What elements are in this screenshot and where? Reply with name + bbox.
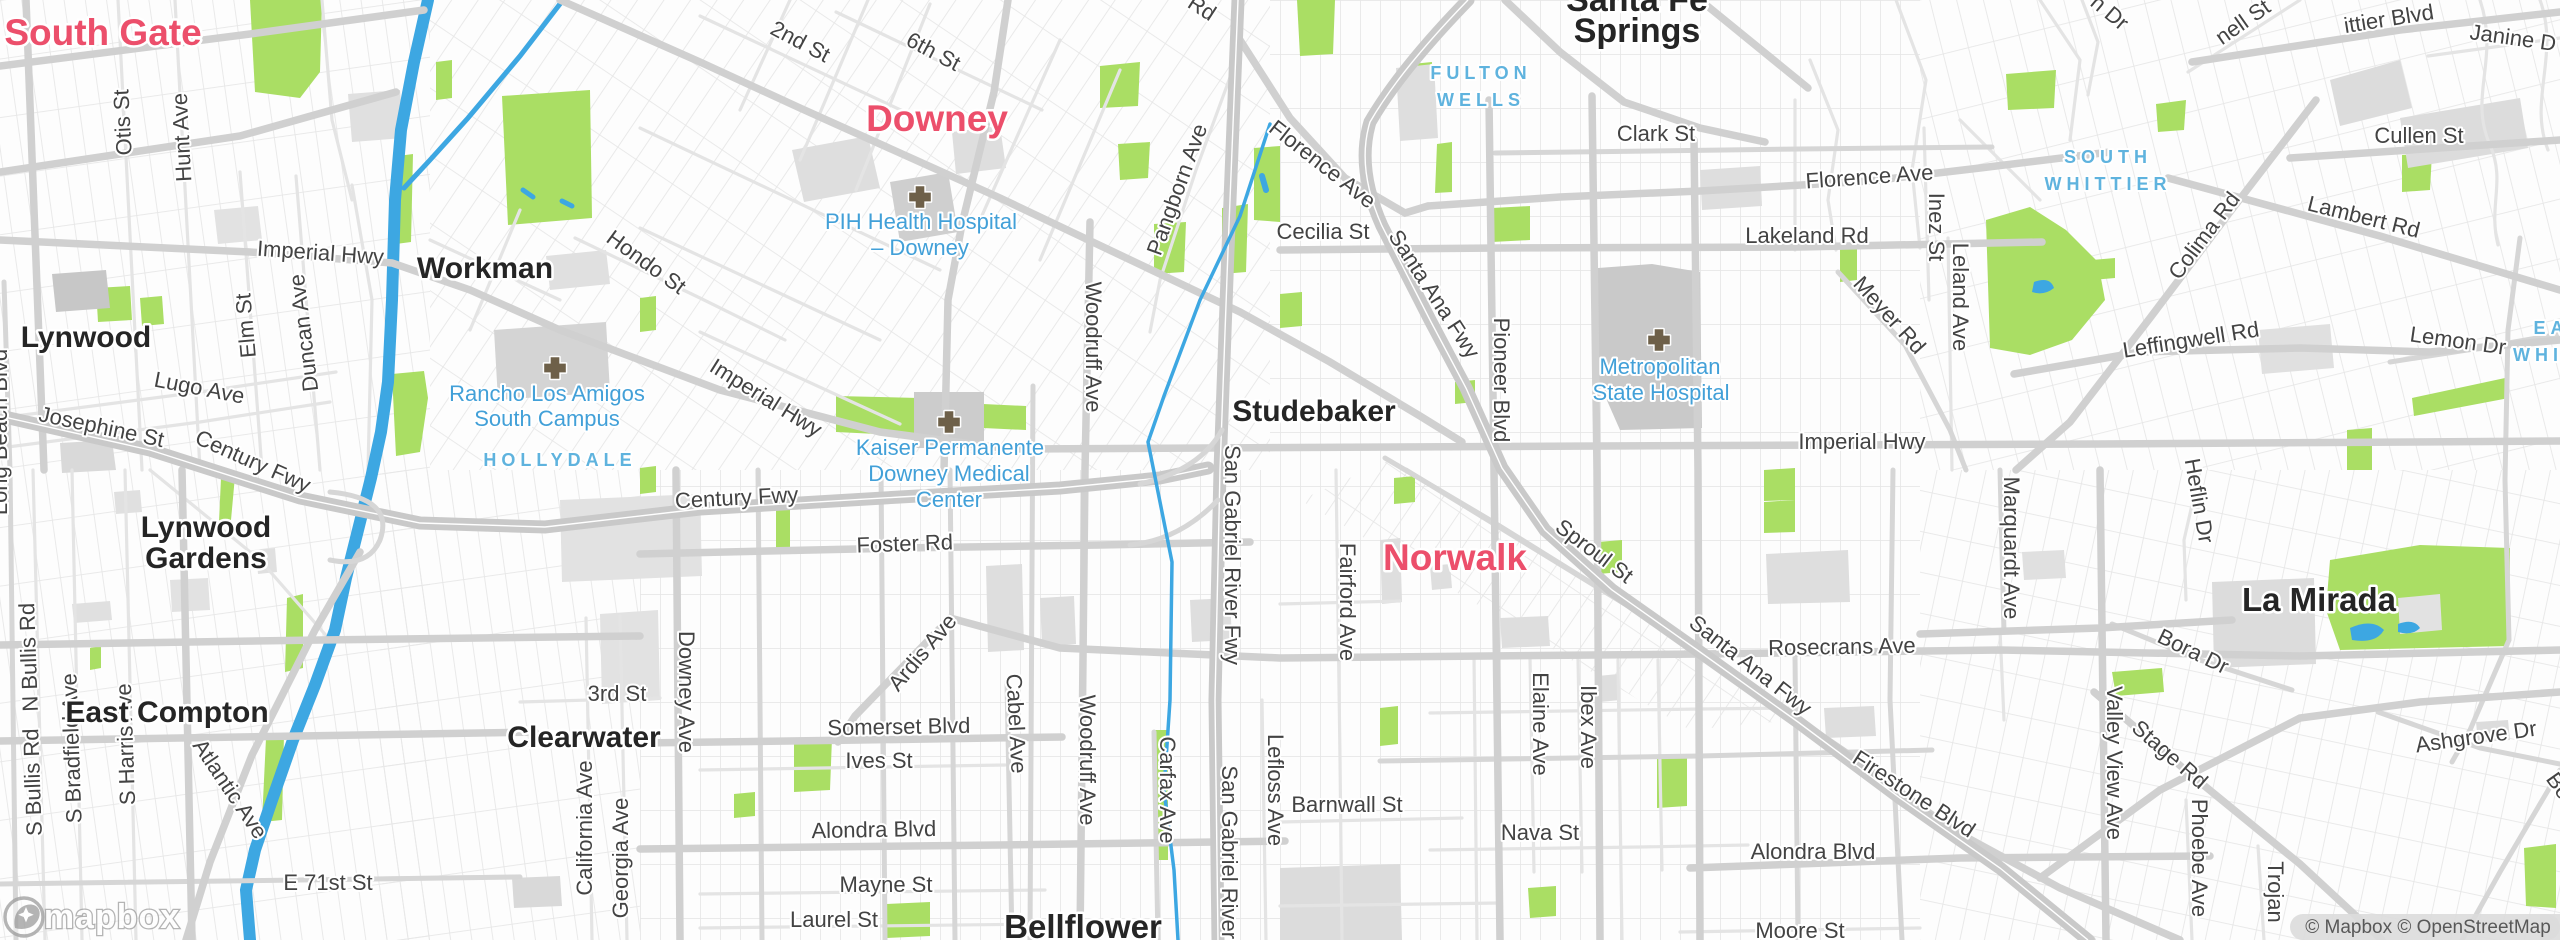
svg-text:Leland Ave: Leland Ave [1948,243,1973,351]
svg-text:Cabel Ave: Cabel Ave [1001,673,1031,774]
svg-text:© Mapbox © OpenStreetMap: © Mapbox © OpenStreetMap [2305,917,2551,938]
svg-text:Lynwood: Lynwood [141,511,272,544]
svg-text:Springs: Springs [1574,12,1701,50]
svg-text:Valley View Ave: Valley View Ave [2102,686,2127,840]
svg-text:Center: Center [916,487,982,512]
svg-text:Ives St: Ives St [845,748,912,773]
svg-text:3rd St: 3rd St [588,681,647,706]
svg-text:E 71st St: E 71st St [283,870,372,895]
svg-text:Downey Ave: Downey Ave [674,631,699,753]
svg-text:WELLS: WELLS [1437,90,1525,110]
svg-text:Rancho Los Amigos: Rancho Los Amigos [449,381,645,406]
svg-text:South Campus: South Campus [474,406,620,431]
svg-text:S Bullis Rd: S Bullis Rd [18,728,47,836]
svg-text:California Ave: California Ave [572,760,597,895]
svg-text:Cecilia St: Cecilia St [1277,219,1370,244]
svg-text:PIH Health Hospital: PIH Health Hospital [825,209,1017,234]
svg-text:Lefloss Ave: Lefloss Ave [1263,734,1288,846]
svg-text:Workman: Workman [417,252,553,285]
svg-text:Fairford Ave: Fairford Ave [1335,543,1360,661]
svg-text:Pioneer Blvd: Pioneer Blvd [1489,318,1514,443]
svg-text:Laurel St: Laurel St [790,907,878,932]
svg-text:Gardens: Gardens [145,542,267,575]
svg-text:WHITTIER: WHITTIER [2045,174,2172,194]
svg-text:Metropolitan: Metropolitan [1599,354,1720,379]
svg-text:Imperial Hwy: Imperial Hwy [1798,429,1925,454]
svg-text:Hunt Ave: Hunt Ave [167,92,197,182]
svg-text:FULTON: FULTON [1430,63,1531,83]
svg-text:Carfax Ave: Carfax Ave [1155,736,1180,843]
svg-text:N Bullis Rd: N Bullis Rd [14,602,43,712]
svg-text:Long Beach Blvd: Long Beach Blvd [0,349,12,515]
svg-text:Lynwood: Lynwood [21,321,152,354]
svg-text:Cullen St: Cullen St [2374,123,2463,148]
svg-text:South Gate: South Gate [4,12,201,53]
svg-text:Inez St: Inez St [1924,193,1949,261]
svg-text:Rosecrans Ave: Rosecrans Ave [1768,633,1916,661]
svg-text:Elaine Ave: Elaine Ave [1528,672,1553,776]
svg-text:La Mirada: La Mirada [2242,581,2397,618]
svg-text:EA: EA [2533,318,2560,338]
svg-text:Phoebe Ave: Phoebe Ave [2187,799,2212,917]
svg-text:HOLLYDALE: HOLLYDALE [483,450,636,470]
svg-text:Downey Medical: Downey Medical [868,461,1029,486]
svg-text:Lakeland Rd: Lakeland Rd [1745,223,1869,248]
svg-text:San Gabriel River F: San Gabriel River F [1217,765,1242,940]
svg-text:Nava St: Nava St [1501,820,1579,845]
svg-text:Trojan: Trojan [2263,861,2288,923]
svg-text:East Compton: East Compton [65,696,268,729]
svg-text:SOUTH: SOUTH [2064,147,2152,167]
svg-text:Alondra Blvd: Alondra Blvd [1751,839,1876,864]
svg-text:mapbox: mapbox [44,898,180,936]
svg-text:Norwalk: Norwalk [1383,537,1527,578]
svg-text:Alondra Blvd: Alondra Blvd [811,816,936,843]
svg-text:Otis St: Otis St [108,89,136,156]
svg-text:Moore St: Moore St [1755,918,1844,940]
svg-text:State Hospital: State Hospital [1593,380,1730,405]
svg-text:Clearwater: Clearwater [507,721,661,754]
svg-text:WHI: WHI [2513,345,2560,365]
svg-text:San Gabriel River Fwy: San Gabriel River Fwy [1220,445,1245,665]
svg-text:Kaiser Permanente: Kaiser Permanente [856,435,1044,460]
svg-text:Downey: Downey [866,98,1008,139]
svg-text:Marquardt Ave: Marquardt Ave [1999,477,2024,620]
svg-text:Mayne St: Mayne St [840,872,933,897]
svg-text:Woodruff Ave: Woodruff Ave [1081,282,1106,413]
svg-text:Bellflower: Bellflower [1004,908,1162,940]
svg-text:Barnwall St: Barnwall St [1291,792,1402,817]
svg-text:Foster Rd: Foster Rd [856,529,953,557]
svg-text:Clark St: Clark St [1617,121,1695,146]
svg-text:Ibex Ave: Ibex Ave [1576,685,1601,769]
svg-text:Georgia Ave: Georgia Ave [608,798,633,919]
svg-text:– Downey: – Downey [871,235,969,260]
svg-text:Somerset Blvd: Somerset Blvd [827,713,970,740]
svg-text:Studebaker: Studebaker [1232,395,1396,428]
svg-text:Woodruff Ave: Woodruff Ave [1075,695,1100,826]
